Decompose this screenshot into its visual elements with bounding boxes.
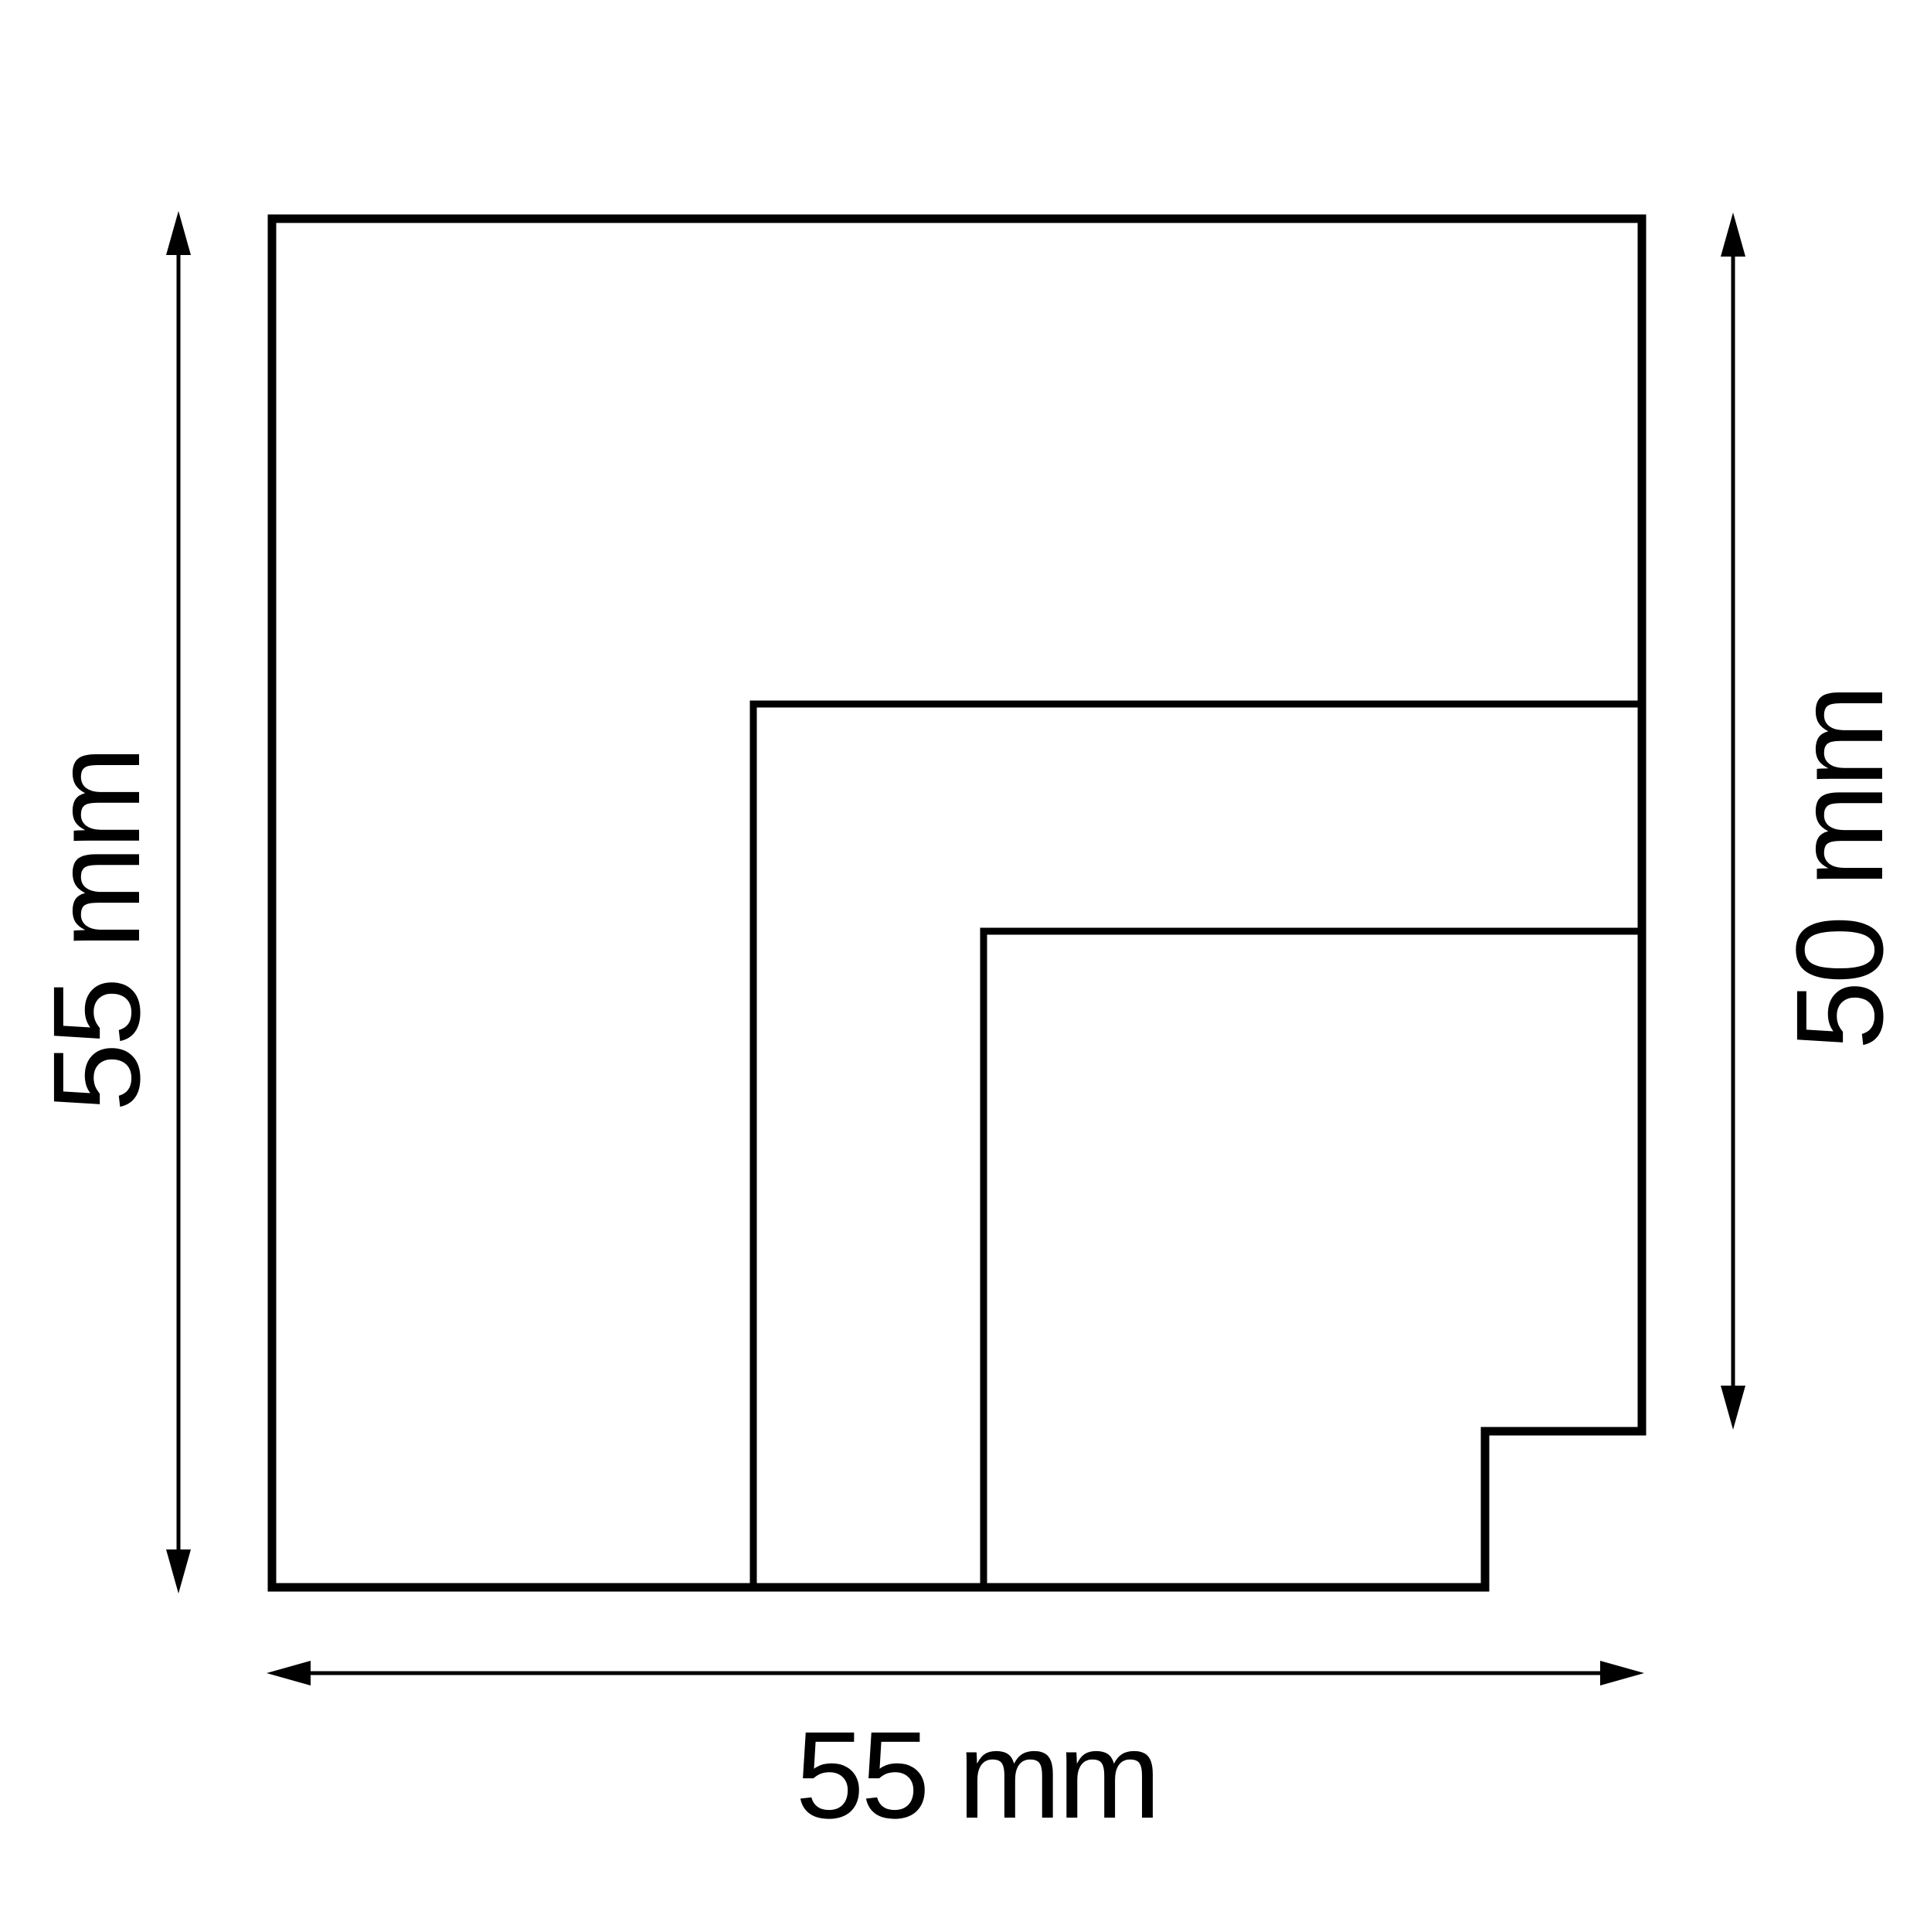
- arrowhead-down-icon: [1721, 1386, 1745, 1430]
- technical-drawing-canvas: 55 mm 50 mm 55 mm: [0, 0, 1927, 1932]
- arrowhead-up-icon: [1721, 213, 1745, 257]
- left-dimension-label: 55 mm: [27, 750, 165, 1112]
- middle-profile-line: [753, 704, 1642, 1587]
- right-dimension-label: 50 mm: [1770, 688, 1908, 1050]
- dimension-bottom: 55 mm: [267, 1661, 1644, 1844]
- arrowhead-down-icon: [166, 1549, 191, 1594]
- bottom-dimension-label: 55 mm: [796, 1706, 1158, 1844]
- dimension-left: 55 mm: [27, 211, 191, 1594]
- outer-profile-outline: [272, 219, 1642, 1587]
- arrowhead-left-icon: [267, 1661, 311, 1685]
- arrowhead-right-icon: [1600, 1661, 1644, 1685]
- corner-profile-drawing: 55 mm 50 mm 55 mm: [0, 0, 1927, 1932]
- arrowhead-up-icon: [166, 211, 191, 255]
- inner-profile-line: [984, 931, 1642, 1587]
- profile-shape: [272, 219, 1642, 1587]
- dimension-right: 50 mm: [1721, 213, 1908, 1430]
